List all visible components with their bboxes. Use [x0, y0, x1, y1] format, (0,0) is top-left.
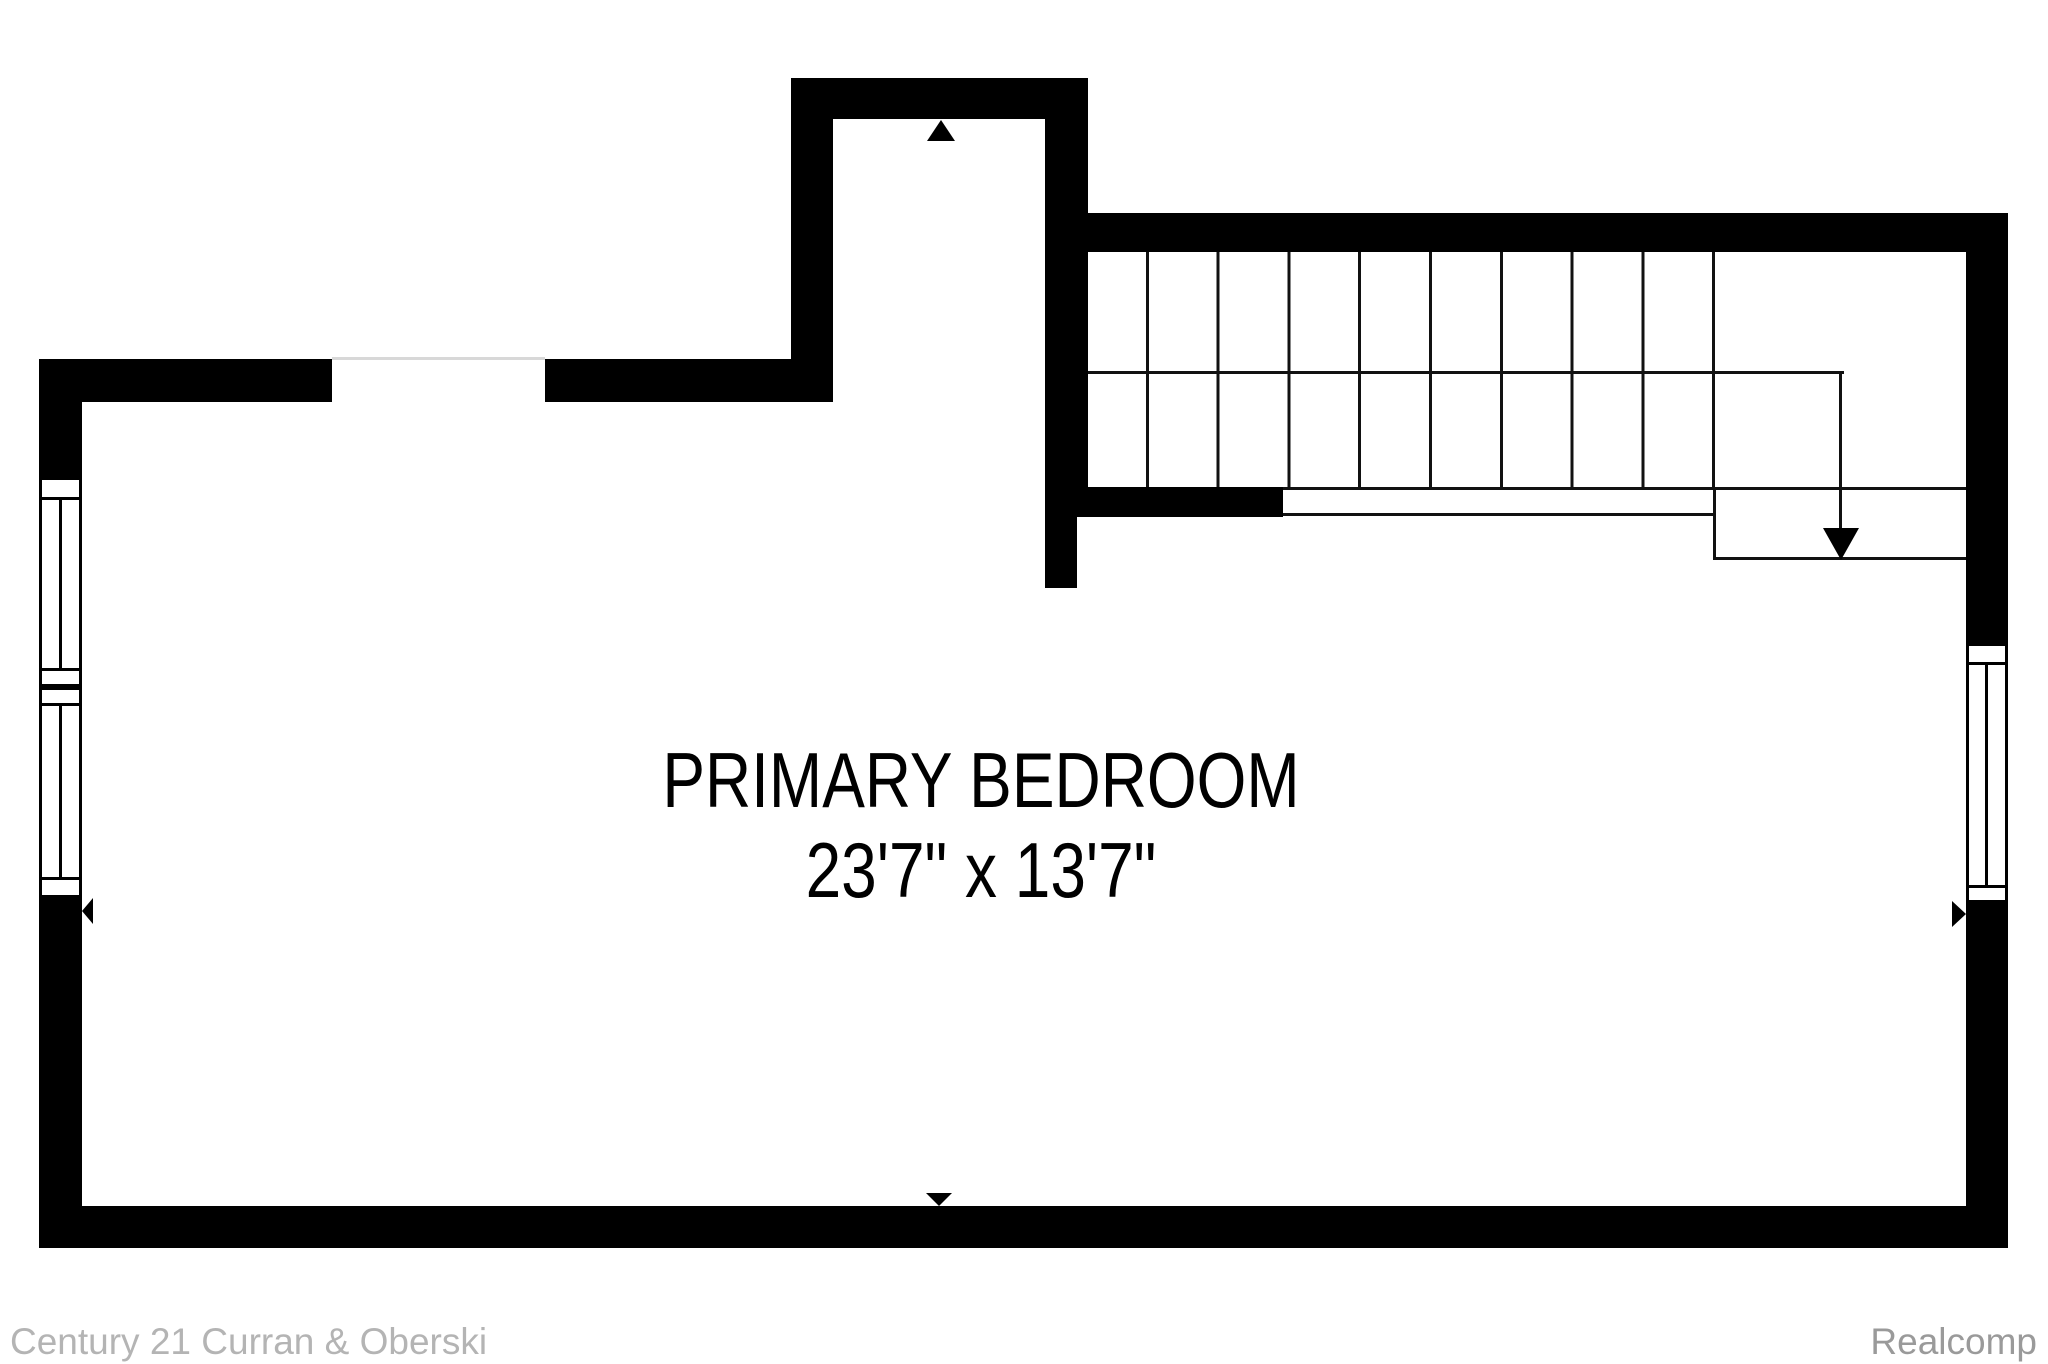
wall-stairwell-left-stub: [1045, 517, 1077, 588]
door-opening-line: [332, 357, 545, 360]
marker-right-icon: [1952, 901, 1966, 927]
wall-right-upper: [1966, 213, 2008, 643]
stair-treads-lower-flight: [1078, 372, 1716, 487]
room-name: PRIMARY BEDROOM: [571, 735, 1391, 825]
wall-bottom: [39, 1206, 2008, 1248]
wall-bumpout-left: [791, 78, 833, 402]
footer-left-attribution: Century 21 Curran & Oberski: [10, 1322, 487, 1362]
window-mullion-line: [59, 703, 62, 880]
wall-top-left: [39, 359, 332, 402]
wall-right-lower: [1966, 903, 2008, 1248]
stair-landing-left-line: [1713, 487, 1716, 560]
footer-right-attribution: Realcomp: [1870, 1322, 2037, 1362]
wall-top-mid: [545, 359, 833, 402]
right-wall-window: [1966, 643, 2008, 903]
stair-railing-line: [1283, 513, 1716, 516]
marker-down-icon: [926, 1193, 952, 1206]
stair-center-divider-line: [1088, 371, 1844, 374]
wall-bumpout-top: [791, 78, 1088, 119]
left-wall-window-upper: [39, 477, 82, 687]
floor-plan: PRIMARY BEDROOM 23'7" x 13'7" Century 21…: [0, 0, 2048, 1364]
wall-stairwell-left: [1045, 119, 1088, 517]
wall-stairwell-bottom: [1045, 487, 1283, 517]
stair-down-arrow-icon: [1823, 528, 1859, 560]
stair-arrow-shaft: [1839, 371, 1842, 531]
stair-treads-upper-flight: [1078, 252, 1716, 372]
room-dimensions: 23'7" x 13'7": [571, 825, 1391, 915]
left-wall-window-lower: [39, 687, 82, 898]
marker-up-icon: [927, 120, 955, 141]
marker-left-icon: [82, 898, 93, 924]
window-mullion-line: [1985, 662, 1988, 888]
room-label: PRIMARY BEDROOM 23'7" x 13'7": [571, 735, 1391, 915]
wall-stairwell-top: [1045, 213, 2008, 252]
wall-left-lower: [39, 898, 82, 1248]
window-mullion-line: [59, 497, 62, 671]
